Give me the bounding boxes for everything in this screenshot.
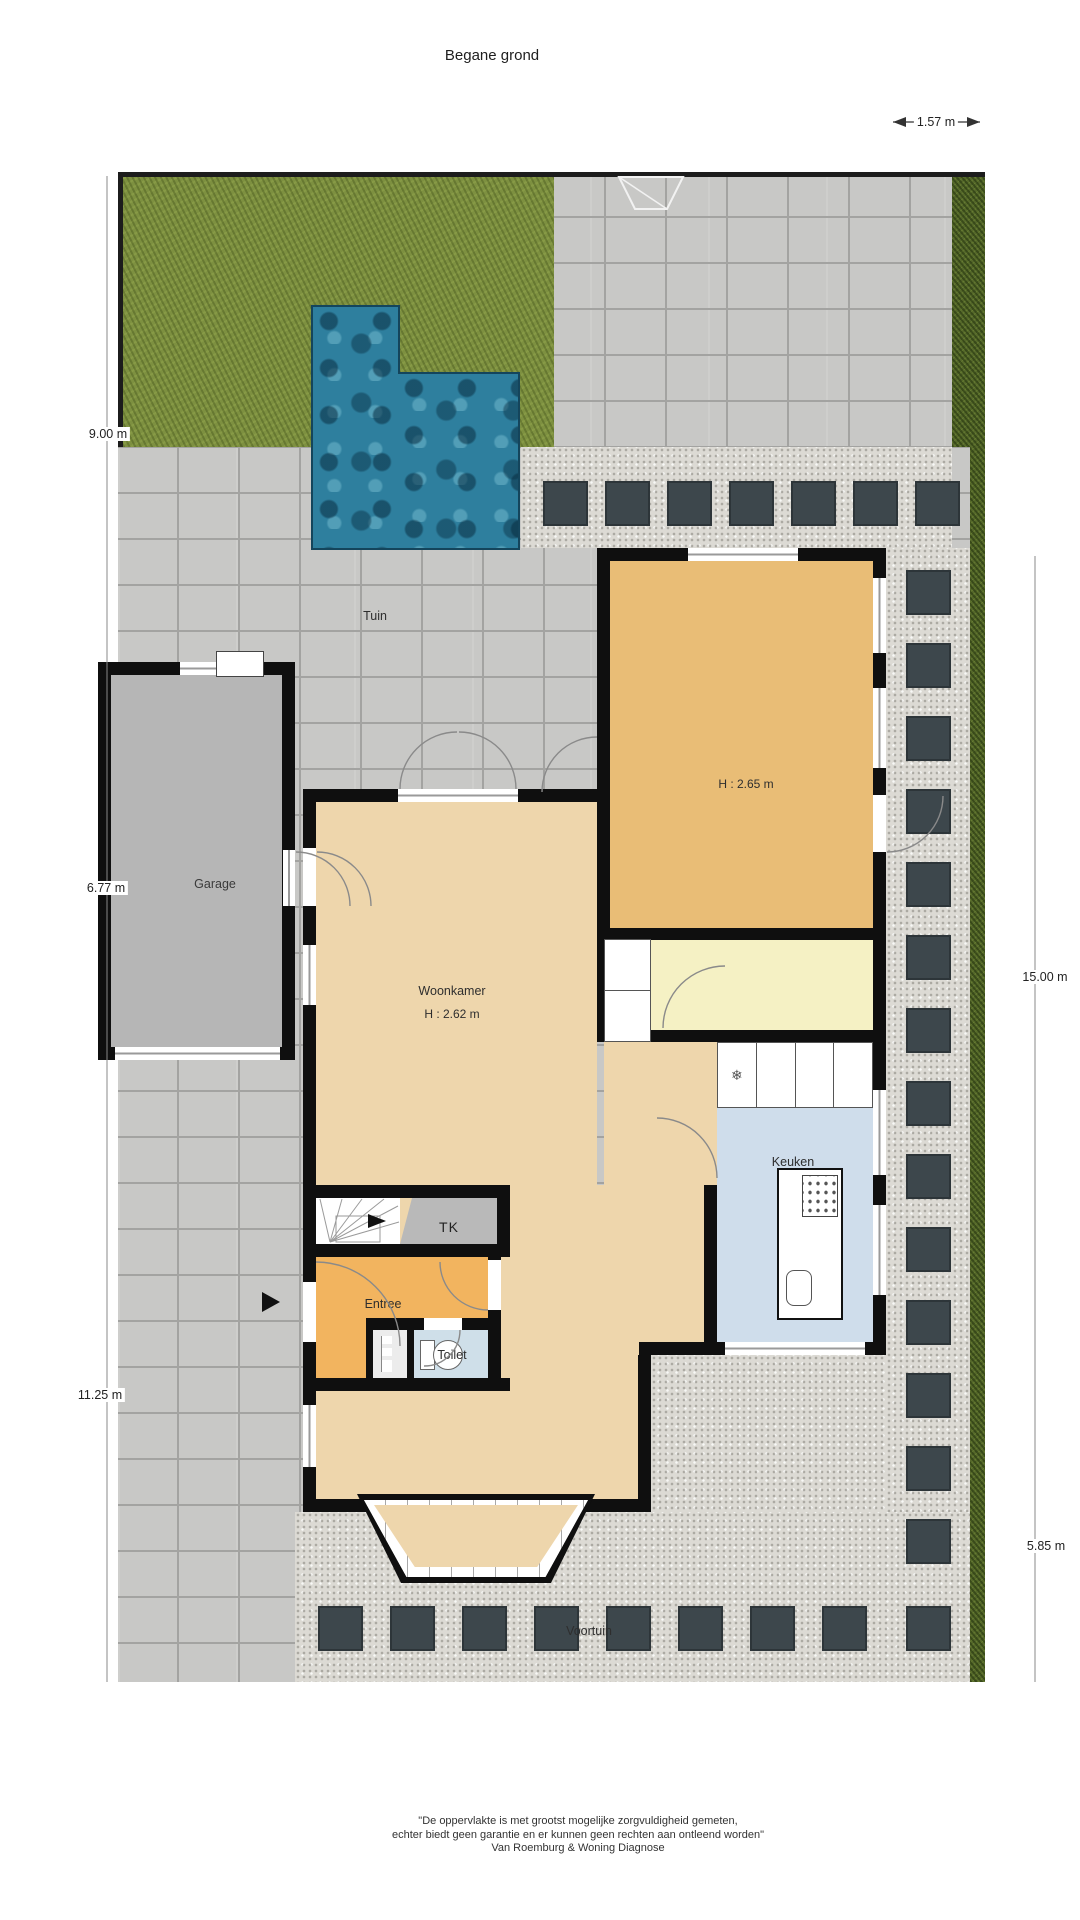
- stepping-stone: [750, 1606, 795, 1651]
- stepping-stone: [906, 1373, 951, 1418]
- stepping-stone: [915, 481, 960, 526]
- room-entree: [316, 1318, 366, 1378]
- stepping-stone: [906, 1154, 951, 1199]
- window: [303, 1405, 316, 1467]
- cupboard: [604, 939, 651, 991]
- stepping-stone: [822, 1606, 867, 1651]
- gravel-side: [651, 1355, 886, 1512]
- stepping-stone: [906, 1606, 951, 1651]
- appliance: [834, 1042, 873, 1108]
- stepping-stone: [906, 935, 951, 980]
- stepping-stone: [906, 716, 951, 761]
- page-title: Begane grond: [342, 47, 642, 64]
- dim-right-2: 5.85 m: [1024, 1539, 1068, 1553]
- garden-doors: [398, 789, 518, 802]
- door-opening: [873, 795, 886, 852]
- staircase: [316, 1198, 400, 1244]
- stepping-stone: [606, 1606, 651, 1651]
- garage-canopy-box: [216, 651, 264, 677]
- pool: [398, 374, 518, 548]
- wall: [303, 802, 316, 1499]
- label-voortuin: Voortuin: [566, 1624, 612, 1638]
- label-tk: TK: [439, 1219, 459, 1235]
- door-opening: [488, 1260, 501, 1310]
- appliance: [757, 1042, 796, 1108]
- window: [873, 688, 886, 768]
- cupboards: [604, 939, 651, 1042]
- stepping-stone: [906, 1519, 951, 1564]
- stepping-stone: [906, 643, 951, 688]
- stepping-stone: [906, 1081, 951, 1126]
- wall: [303, 1244, 497, 1257]
- wall: [366, 1330, 373, 1378]
- label-keuken: Keuken: [772, 1155, 814, 1169]
- wall: [597, 561, 610, 802]
- wall: [597, 939, 604, 1042]
- door-opening: [303, 848, 316, 906]
- dim-top: 1.57 m: [914, 115, 958, 129]
- front-door: [303, 1282, 316, 1342]
- disclaimer-line3: Van Roemburg & Woning Diagnose: [128, 1842, 1028, 1856]
- dim-left-2: 6.77 m: [84, 881, 128, 895]
- disclaimer-line2: echter biedt geen garantie en er kunnen …: [128, 1829, 1028, 1843]
- dim-left-3: 11.25 m: [75, 1388, 125, 1402]
- door-opening: [424, 1318, 462, 1330]
- stepping-stone: [906, 1446, 951, 1491]
- window: [873, 578, 886, 653]
- room-utility: [651, 940, 873, 1030]
- window: [688, 548, 798, 561]
- freezer-icon: ❄: [717, 1042, 757, 1108]
- stepping-stone: [318, 1606, 363, 1651]
- stepping-stone: [543, 481, 588, 526]
- window: [303, 945, 316, 1005]
- room-garage: [111, 675, 282, 1047]
- wall: [303, 1378, 510, 1391]
- room-upper: [610, 561, 873, 928]
- window: [873, 1090, 886, 1175]
- stepping-stone: [678, 1606, 723, 1651]
- fence-top: [118, 172, 985, 177]
- stepping-stone: [853, 481, 898, 526]
- wall: [597, 802, 610, 939]
- wall: [407, 1330, 414, 1378]
- dim-right-1: 15.00 m: [1019, 970, 1070, 984]
- wall: [639, 1030, 886, 1042]
- stepping-stone: [462, 1606, 507, 1651]
- window: [873, 1205, 886, 1295]
- label-woonkamer: Woonkamer: [418, 984, 485, 998]
- hedge-top-right: [952, 177, 985, 447]
- disclaimer-line1: "De oppervlakte is met grootst mogelijke…: [128, 1815, 1028, 1829]
- appliance: [796, 1042, 835, 1108]
- meter-fixtures: [381, 1336, 392, 1372]
- wall: [303, 1185, 510, 1198]
- cupboard: [604, 990, 651, 1042]
- stepping-stone: [906, 789, 951, 834]
- fence-left: [118, 172, 123, 447]
- label-toilet: Toilet: [437, 1348, 466, 1362]
- door-opening: [283, 850, 295, 906]
- stepping-stone: [906, 570, 951, 615]
- garage-door: [115, 1047, 280, 1060]
- floorplan-page: Begane grond: [0, 0, 1080, 1920]
- room-entree: [316, 1257, 488, 1318]
- stepping-stone: [729, 481, 774, 526]
- disclaimer: "De oppervlakte is met grootst mogelijke…: [128, 1815, 1028, 1856]
- dim-left-1: 9.00 m: [86, 427, 130, 441]
- label-tuin: Tuin: [363, 609, 387, 623]
- stepping-stone: [906, 1008, 951, 1053]
- stepping-stone: [906, 862, 951, 907]
- wall: [704, 1185, 717, 1355]
- label-entree: Entree: [365, 1297, 402, 1311]
- wall: [497, 1185, 510, 1257]
- window: [725, 1342, 865, 1355]
- stepping-stone: [906, 1227, 951, 1272]
- stepping-stone: [390, 1606, 435, 1651]
- cooktop: [802, 1175, 838, 1217]
- kitchen-island: [777, 1168, 843, 1320]
- label-woonkamer-height: H : 2.62 m: [424, 1007, 479, 1021]
- wall: [638, 1355, 651, 1499]
- stepping-stone: [906, 1300, 951, 1345]
- sink: [786, 1270, 812, 1306]
- stepping-stone: [605, 481, 650, 526]
- label-garage: Garage: [194, 877, 236, 891]
- stepping-stone: [667, 481, 712, 526]
- stepping-stone: [791, 481, 836, 526]
- pool: [313, 307, 398, 548]
- hallway: [604, 1042, 717, 1342]
- label-upper-room-height: H : 2.65 m: [718, 777, 773, 791]
- appliance-row: ❄: [717, 1042, 873, 1108]
- hedge-right-strip: [970, 447, 985, 1682]
